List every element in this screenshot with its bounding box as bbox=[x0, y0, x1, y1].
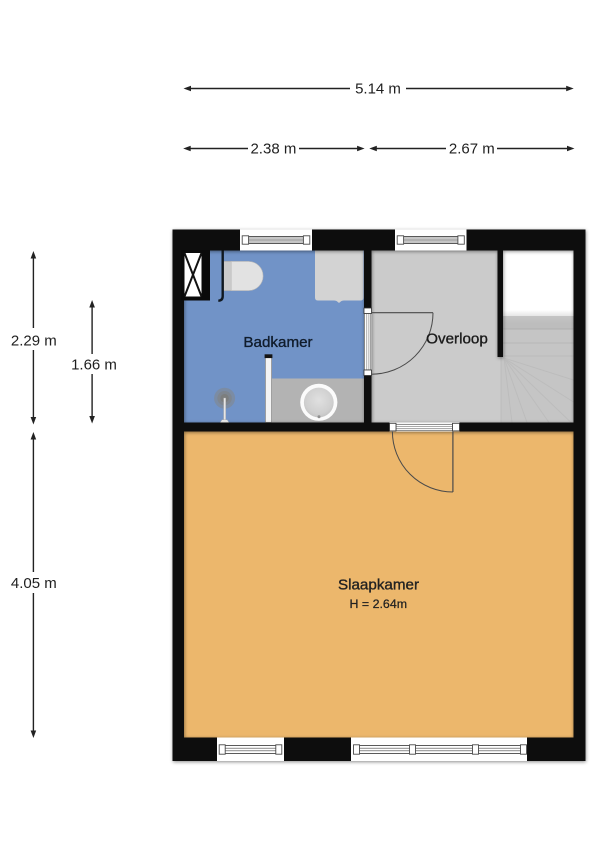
svg-text:Badkamer: Badkamer bbox=[243, 334, 312, 351]
svg-text:2.67 m: 2.67 m bbox=[449, 140, 495, 157]
svg-text:1.66 m: 1.66 m bbox=[71, 356, 117, 373]
svg-text:Overloop: Overloop bbox=[426, 331, 488, 348]
svg-text:4.05 m: 4.05 m bbox=[11, 575, 57, 592]
svg-text:2.38 m: 2.38 m bbox=[250, 140, 296, 157]
svg-text:2.29 m: 2.29 m bbox=[11, 332, 57, 349]
svg-text:Slaapkamer: Slaapkamer bbox=[338, 577, 419, 594]
svg-text:5.14 m: 5.14 m bbox=[355, 80, 401, 97]
svg-text:H = 2.64m: H = 2.64m bbox=[350, 597, 408, 611]
